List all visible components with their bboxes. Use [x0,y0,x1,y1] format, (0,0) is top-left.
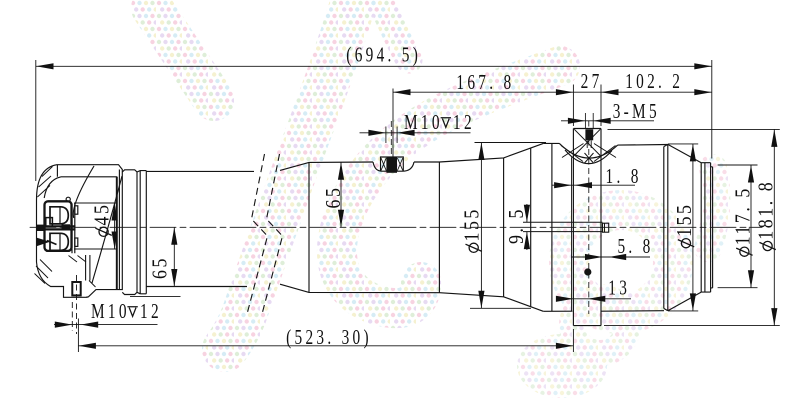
svg-text:M10: M10 [404,111,443,134]
svg-text:102. 2: 102. 2 [625,70,683,93]
svg-text:45: 45 [91,203,114,226]
svg-text:(523. 30): (523. 30) [286,326,372,350]
svg-text:117. 5: 117. 5 [732,186,755,245]
svg-text:M10: M10 [91,300,130,323]
svg-text:167. 8: 167. 8 [456,71,514,94]
svg-text:155: 155 [674,202,697,236]
svg-text:1. 8: 1. 8 [606,165,642,188]
svg-text:13: 13 [608,276,630,299]
svg-text:65: 65 [149,256,172,279]
svg-text:(694. 5): (694. 5) [346,43,421,67]
svg-text:27: 27 [581,70,603,93]
svg-text:155: 155 [461,207,484,241]
svg-text:3-M5: 3-M5 [613,100,660,123]
svg-text:5. 8: 5. 8 [617,235,653,258]
svg-text:12: 12 [453,111,475,134]
svg-text:9. 5: 9. 5 [506,207,529,244]
svg-text:65: 65 [323,186,346,209]
svg-text:12: 12 [140,300,162,323]
svg-text:181. 8: 181. 8 [755,180,778,240]
